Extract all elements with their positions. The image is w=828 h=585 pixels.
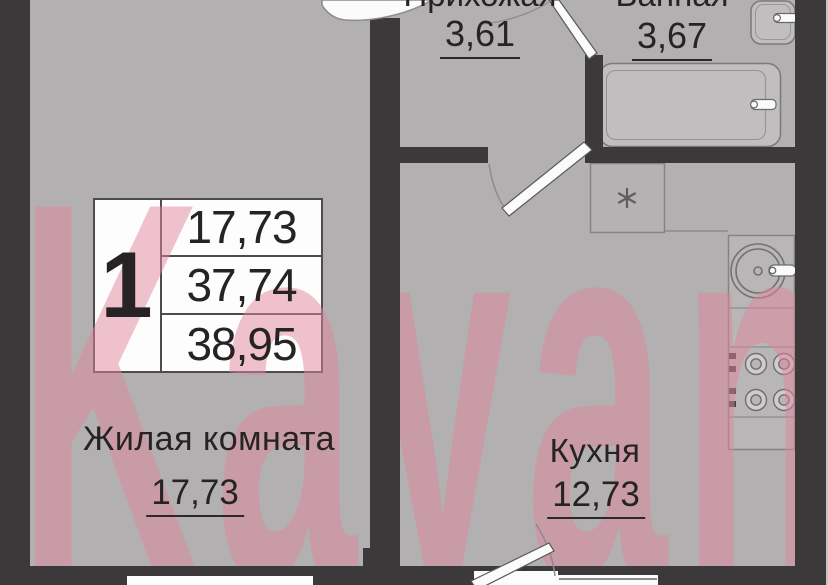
hallway-label: Прихожая bbox=[404, 0, 557, 14]
living-room-label: Жилая комната bbox=[83, 420, 335, 459]
legend-living-area: 17,73 bbox=[160, 198, 323, 256]
balcony-door bbox=[471, 524, 657, 585]
floor-plan: Kayan 1 17,73 37,74 bbox=[0, 0, 828, 585]
legend-area-no-balcony: 37,74 bbox=[160, 256, 323, 314]
living-room-area: 17,73 bbox=[146, 473, 244, 517]
kitchen-area: 12,73 bbox=[547, 475, 645, 519]
bathroom-label: Ванная bbox=[615, 0, 728, 14]
kitchen-label: Кухня bbox=[550, 432, 641, 470]
bathroom-area: 3,67 bbox=[632, 15, 712, 61]
legend-total-area: 38,95 bbox=[160, 315, 323, 373]
legend-values: 1 17,73 37,74 38,95 bbox=[93, 198, 323, 373]
legend-rooms-count: 1 bbox=[93, 198, 160, 373]
kitchen-door bbox=[489, 142, 592, 216]
hallway-area: 3,61 bbox=[440, 13, 520, 59]
